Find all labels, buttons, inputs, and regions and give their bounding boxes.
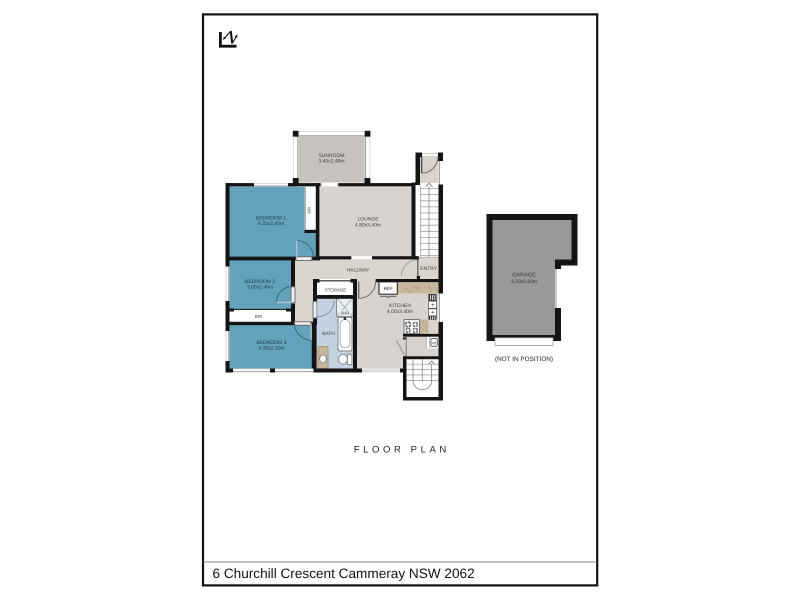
svg-text:3.20x5.60m: 3.20x5.60m — [511, 279, 537, 285]
svg-text:4.20x2.40m: 4.20x2.40m — [258, 221, 284, 227]
svg-text:ENTRY: ENTRY — [420, 266, 438, 272]
svg-text:STORAGE: STORAGE — [325, 288, 346, 293]
svg-text:(NOT IN POSITION): (NOT IN POSITION) — [495, 356, 553, 363]
svg-text:BATH: BATH — [322, 331, 335, 337]
svg-text:BIR: BIR — [255, 314, 262, 319]
svg-text:SHR: SHR — [341, 311, 350, 316]
svg-text:W: W — [432, 341, 436, 346]
svg-text:4.80x3.40m: 4.80x3.40m — [355, 222, 381, 228]
svg-text:6 Churchill Crescent Cammeray: 6 Churchill Crescent Cammeray NSW 2062 — [213, 566, 475, 581]
svg-text:HALLWAY: HALLWAY — [347, 267, 371, 273]
svg-text:3.00x2.40m: 3.00x2.40m — [247, 285, 273, 291]
svg-text:4.00x3.40m: 4.00x3.40m — [387, 309, 413, 315]
svg-text:BIR: BIR — [307, 207, 312, 214]
svg-text:4.20x2.20m: 4.20x2.20m — [258, 345, 284, 351]
svg-text:3.40x2.40m: 3.40x2.40m — [318, 159, 344, 165]
svg-text:REF: REF — [384, 286, 393, 291]
svg-text:GARAGE: GARAGE — [512, 273, 536, 279]
svg-text:FLOOR PLAN: FLOOR PLAN — [354, 445, 450, 456]
